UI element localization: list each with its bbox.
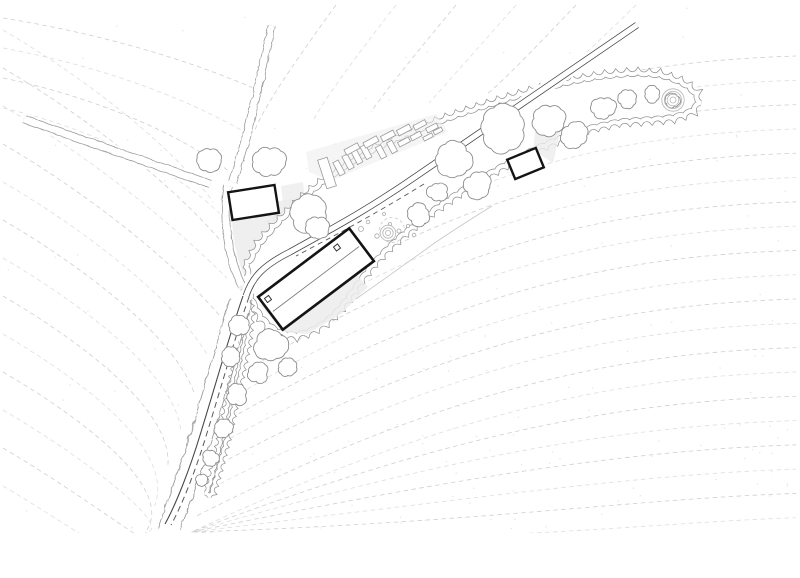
site-plan-drawing — [0, 0, 800, 578]
site-plan-page — [0, 0, 800, 578]
